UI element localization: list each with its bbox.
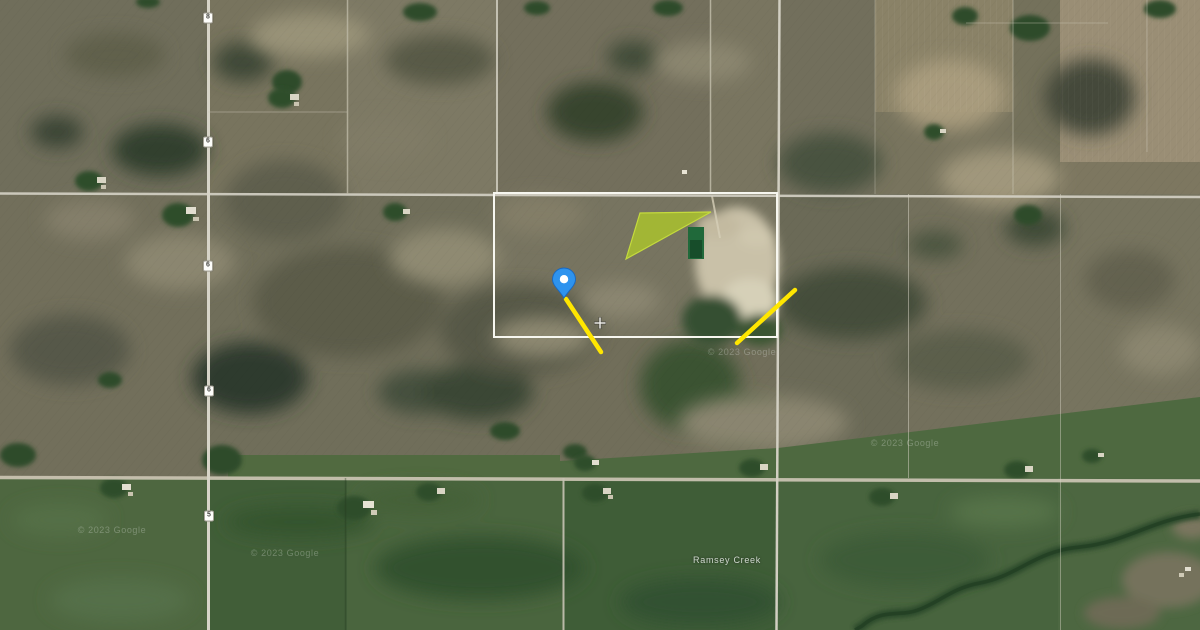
map-canvas[interactable]: 86665© 2023 Google© 2023 Google© 2023 Go…: [0, 0, 1200, 630]
location-pin-center: [560, 275, 568, 283]
map-annotations-layer: [0, 0, 1200, 630]
drawn-yellow-line-2[interactable]: [737, 290, 795, 343]
highlighted-area-polygon[interactable]: [626, 212, 711, 259]
parcel-boundary[interactable]: [494, 193, 777, 337]
drawn-yellow-line-1[interactable]: [566, 299, 601, 352]
